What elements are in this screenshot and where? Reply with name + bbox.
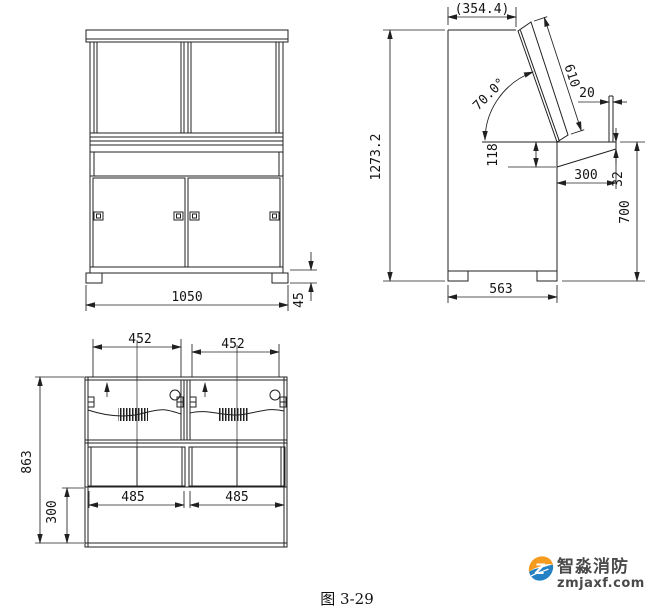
- svg-text:32: 32: [611, 171, 626, 187]
- side-body-outline: [448, 30, 557, 271]
- foot-right: [272, 273, 288, 283]
- watermark-domain: zmjaxf.com: [557, 576, 645, 591]
- dim-total-height: 1273.2: [369, 30, 445, 281]
- dim-panel-angle: 70.0°: [470, 72, 533, 140]
- dim-rear-lip: 20: [578, 86, 627, 102]
- svg-text:(354.4): (354.4): [455, 2, 510, 17]
- vent-grille-right: [219, 408, 249, 421]
- svg-text:485: 485: [225, 490, 248, 505]
- svg-text:452: 452: [128, 332, 151, 347]
- side-foot-left: [448, 271, 468, 281]
- drawing-svg: 1050 45 (354.4) 610: [0, 0, 655, 616]
- dim-front-width: 1050: [86, 285, 288, 311]
- lower-door-left: [93, 178, 185, 267]
- dim-base-depth: 563: [448, 282, 557, 303]
- tilted-panel: [518, 22, 568, 142]
- dim-bay-left: 485: [89, 490, 184, 508]
- dim-panel-length: 610: [534, 17, 584, 134]
- vent-grille-left: [118, 408, 148, 421]
- mid-bands: [90, 133, 283, 152]
- plan-outline: [85, 377, 287, 547]
- svg-text:20: 20: [579, 86, 595, 101]
- technical-drawing-page: 1050 45 (354.4) 610: [0, 0, 655, 616]
- door-handles: [94, 212, 279, 220]
- svg-text:300: 300: [45, 500, 60, 523]
- watermark: Z 智淼消防 zmjaxf.com: [529, 556, 645, 591]
- watermark-brand: 智淼消防: [557, 556, 629, 577]
- dim-bay-right: 485: [190, 490, 284, 508]
- side-view: (354.4) 610 70.0° 20 118 300: [369, 2, 645, 303]
- svg-text:1273.2: 1273.2: [369, 134, 384, 181]
- dim-front-depth: 300: [45, 488, 84, 543]
- svg-text:700: 700: [618, 200, 633, 223]
- svg-text:452: 452: [221, 337, 244, 352]
- figure-caption: 图 3-29: [320, 590, 373, 608]
- dim-front-base-height: 45: [290, 252, 317, 308]
- svg-text:1050: 1050: [171, 290, 202, 305]
- dim-desk-height: 700: [562, 142, 645, 281]
- svg-text:Z: Z: [534, 562, 546, 578]
- svg-text:45: 45: [292, 292, 307, 308]
- dim-apron: 118: [486, 142, 556, 167]
- desk-rear-lip: [609, 96, 613, 142]
- svg-text:485: 485: [121, 490, 144, 505]
- cabinet-body-outline: [90, 42, 283, 273]
- desk-profile: [482, 142, 616, 167]
- cabinet-top-cap: [86, 30, 288, 42]
- front-view: 1050 45: [86, 30, 317, 311]
- glass-door-stiles: [94, 42, 279, 133]
- lower-door-right: [188, 178, 280, 267]
- drawer-band: [90, 152, 283, 176]
- hole-left: [170, 390, 180, 400]
- plan-view: 485 485 452 452 863 300: [20, 332, 287, 547]
- dim-door-right: 452: [192, 337, 279, 377]
- side-foot-right: [537, 271, 557, 281]
- svg-text:863: 863: [20, 450, 35, 473]
- svg-text:563: 563: [489, 282, 512, 297]
- plan-center-divider: [181, 380, 190, 440]
- dim-side-top-depth: (354.4): [448, 2, 516, 27]
- hole-right: [270, 390, 280, 400]
- foot-left: [86, 273, 102, 283]
- watermark-logo-icon: Z: [529, 556, 553, 580]
- svg-text:70.0°: 70.0°: [470, 75, 508, 113]
- svg-text:118: 118: [486, 143, 501, 166]
- svg-text:300: 300: [574, 168, 597, 183]
